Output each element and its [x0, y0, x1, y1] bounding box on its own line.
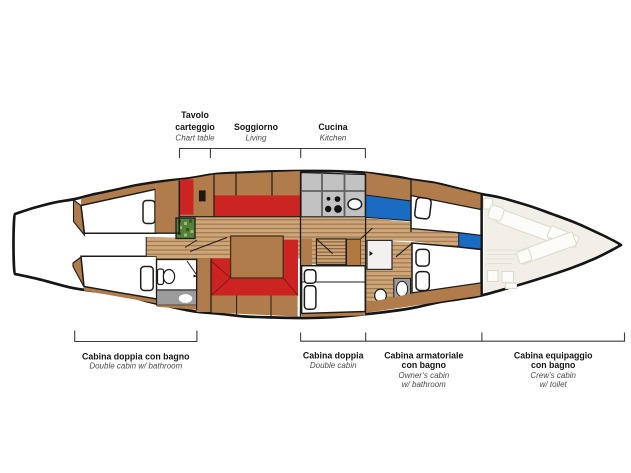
svg-text:w/ bathroom: w/ bathroom [402, 380, 446, 389]
svg-text:Cabina equipaggio: Cabina equipaggio [514, 351, 593, 361]
svg-text:con bagno: con bagno [402, 360, 447, 370]
svg-text:Crew’s cabin: Crew’s cabin [530, 371, 576, 380]
svg-text:Cucina: Cucina [318, 122, 347, 132]
svg-text:Owner’s cabin: Owner’s cabin [398, 371, 449, 380]
svg-text:w/ toilet: w/ toilet [540, 380, 568, 389]
svg-text:Living: Living [246, 134, 267, 143]
svg-text:Double cabin: Double cabin [310, 361, 357, 370]
svg-text:Tavolo: Tavolo [181, 110, 209, 120]
svg-text:con bagno: con bagno [531, 360, 576, 370]
svg-text:Soggiorno: Soggiorno [234, 122, 279, 132]
svg-text:carteggio: carteggio [175, 122, 215, 132]
svg-text:Kitchen: Kitchen [320, 134, 347, 143]
svg-text:Cabina doppia: Cabina doppia [303, 351, 364, 361]
svg-text:Chart table: Chart table [175, 134, 215, 143]
svg-text:Cabina armatoriale: Cabina armatoriale [384, 351, 463, 361]
svg-text:Double cabin w/ bathroom: Double cabin w/ bathroom [89, 362, 182, 371]
svg-text:Cabina doppia con bagno: Cabina doppia con bagno [82, 351, 190, 361]
